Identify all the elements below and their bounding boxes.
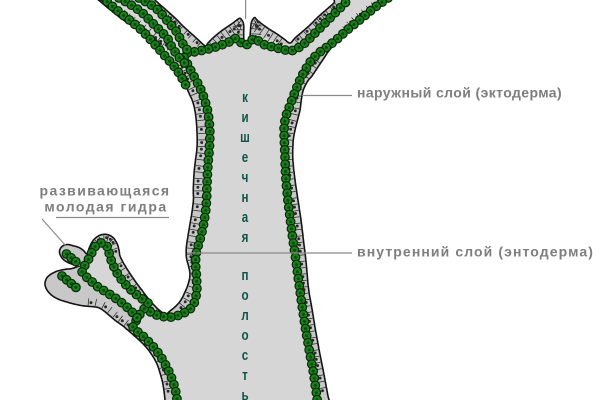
svg-text:о: о: [241, 287, 248, 304]
svg-text:к: к: [242, 89, 248, 106]
svg-text:е: е: [242, 149, 248, 166]
svg-text:внутренний слой (энтодерма): внутренний слой (энтодерма): [357, 244, 594, 260]
svg-text:л: л: [241, 307, 248, 324]
svg-text:ш: ш: [240, 129, 250, 146]
svg-text:наружный слой (эктодерма): наружный слой (эктодерма): [357, 85, 562, 101]
svg-text:развивающаяся: развивающаяся: [40, 183, 171, 199]
svg-text:о: о: [241, 327, 248, 344]
svg-text:н: н: [241, 189, 248, 206]
svg-text:молодая гидра: молодая гидра: [44, 199, 167, 215]
svg-text:п: п: [241, 267, 248, 284]
svg-text:с: с: [242, 347, 248, 364]
svg-text:т: т: [242, 367, 248, 384]
svg-text:я: я: [242, 229, 249, 246]
svg-text:ч: ч: [242, 169, 249, 186]
svg-text:и: и: [241, 109, 248, 126]
svg-text:а: а: [242, 209, 249, 226]
svg-text:ь: ь: [241, 387, 248, 400]
